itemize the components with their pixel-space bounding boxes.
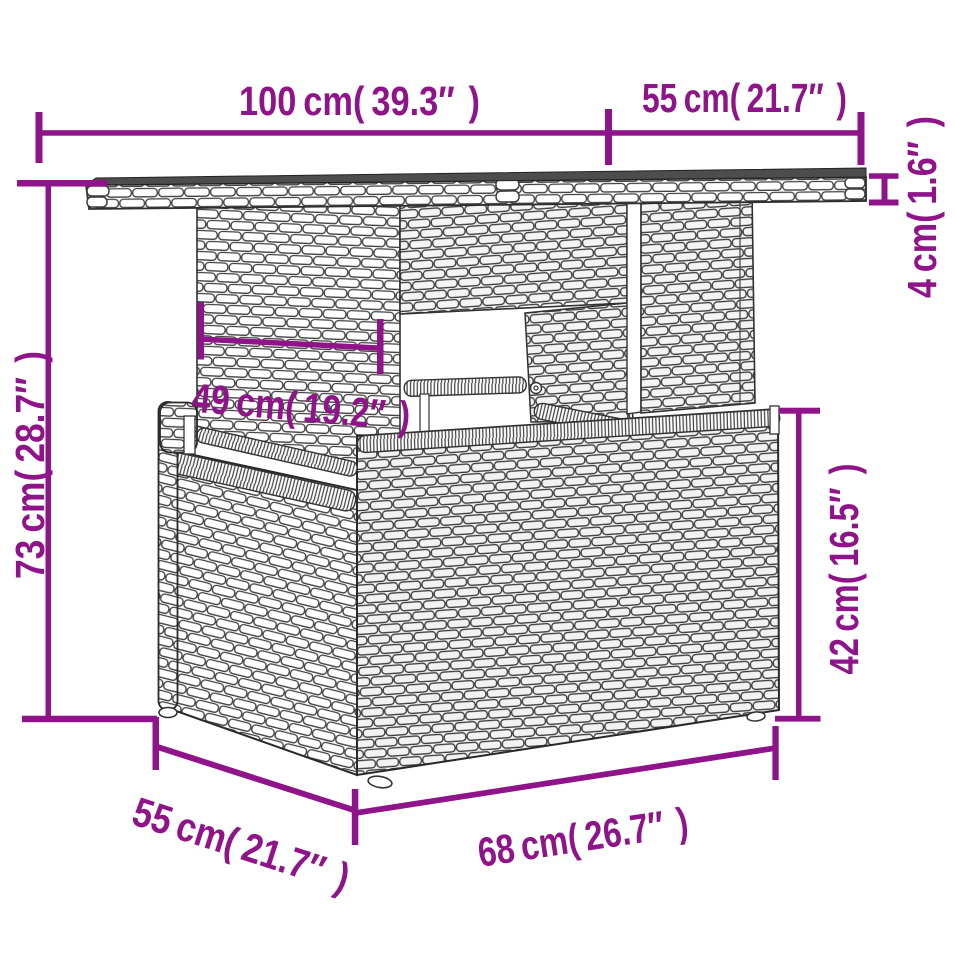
- svg-text:55 cm( 21.7″ ): 55 cm( 21.7″ ): [642, 75, 847, 121]
- svg-text:73 cm( 28.7″ ): 73 cm( 28.7″ ): [7, 351, 53, 579]
- svg-text:100 cm( 39.3″ ): 100 cm( 39.3″ ): [239, 78, 480, 124]
- svg-text:42 cm( 16.5″ ): 42 cm( 16.5″ ): [821, 464, 867, 675]
- svg-text:4 cm( 1.6″ ): 4 cm( 1.6″ ): [899, 116, 945, 298]
